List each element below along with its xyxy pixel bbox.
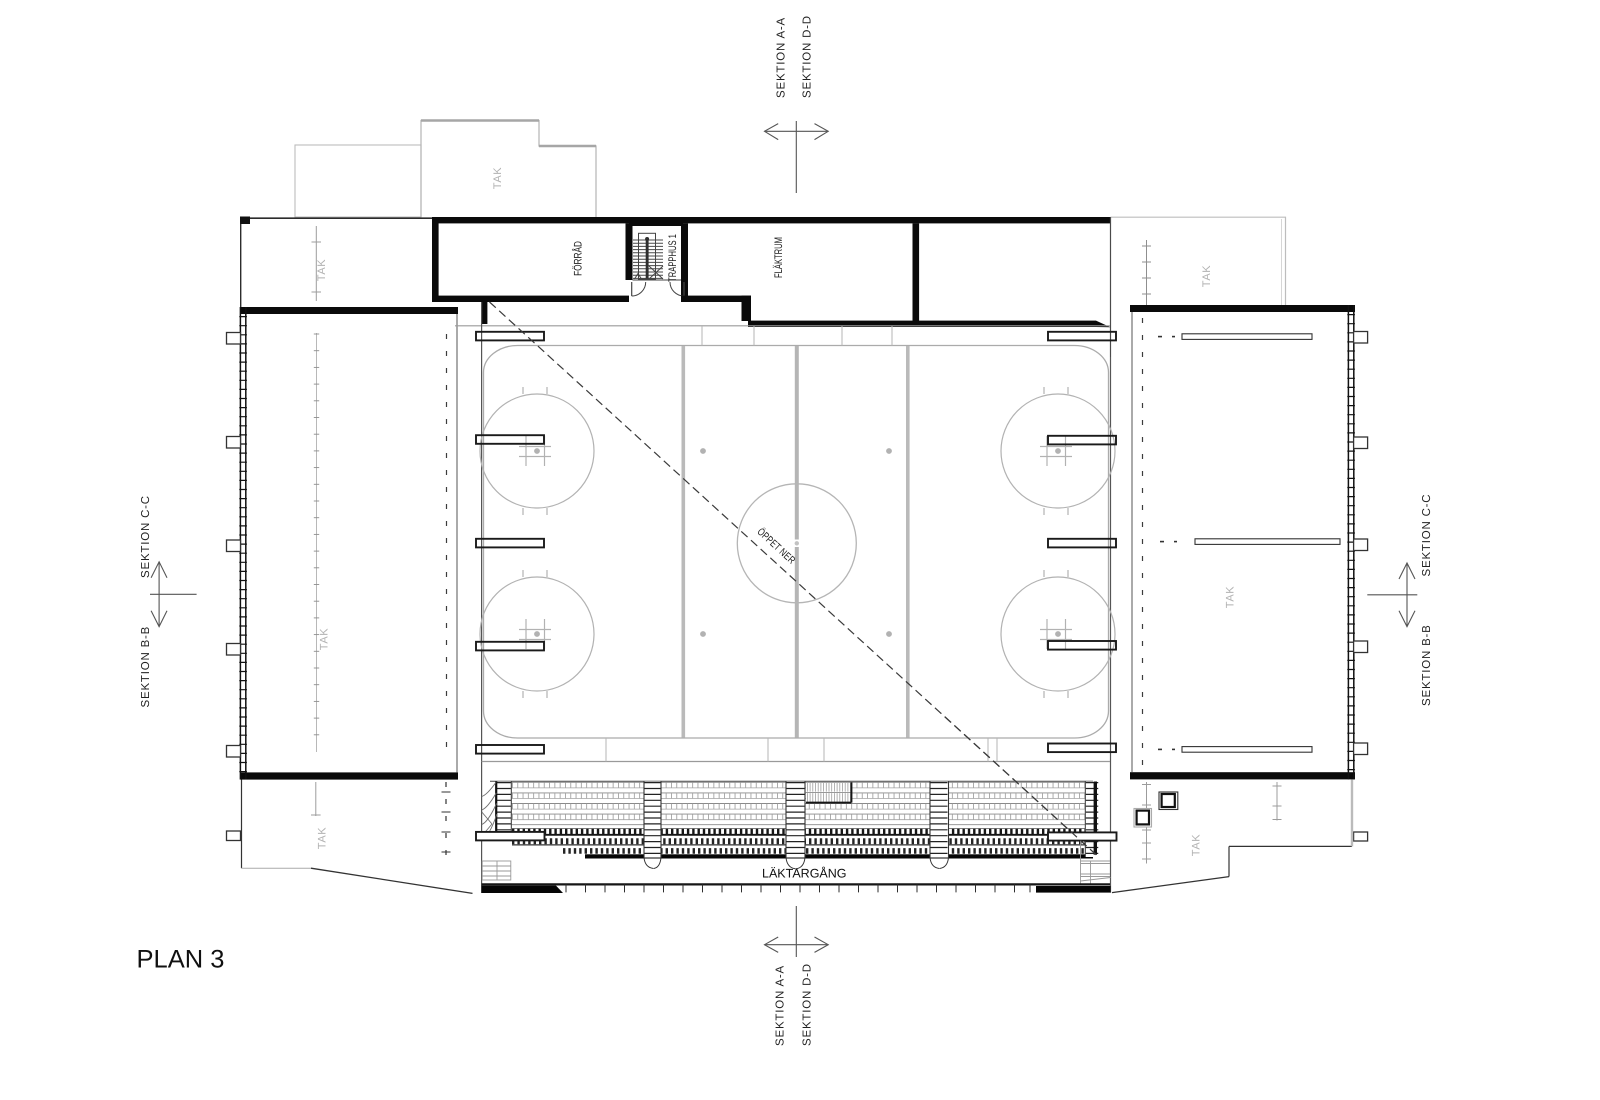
svg-text:TRAPPHUS 1: TRAPPHUS 1 (667, 234, 679, 282)
svg-text:SEKTION A-A: SEKTION A-A (775, 965, 787, 1046)
svg-text:PLAN 3: PLAN 3 (137, 946, 225, 974)
svg-text:SEKTION B-B: SEKTION B-B (1421, 624, 1433, 706)
svg-text:FLÄKTRUM: FLÄKTRUM (772, 237, 785, 278)
svg-text:SEKTION B-B: SEKTION B-B (140, 626, 152, 708)
svg-text:SEKTION C-C: SEKTION C-C (1421, 494, 1433, 577)
svg-text:SEKTION D-D: SEKTION D-D (801, 963, 813, 1046)
svg-text:LÄKTARGÅNG: LÄKTARGÅNG (762, 867, 847, 881)
svg-text:FÖRRÅD: FÖRRÅD (572, 241, 585, 276)
svg-text:TAK: TAK (317, 827, 329, 849)
svg-text:TAK: TAK (1201, 265, 1213, 287)
svg-text:TAK: TAK (1225, 586, 1237, 608)
svg-text:TAK: TAK (492, 167, 504, 189)
svg-text:TAK: TAK (316, 259, 328, 281)
svg-text:TAK: TAK (1191, 834, 1203, 856)
svg-text:SEKTION C-C: SEKTION C-C (140, 495, 152, 578)
svg-text:SEKTION A-A: SEKTION A-A (776, 17, 788, 98)
svg-text:TAK: TAK (319, 628, 331, 650)
svg-text:SEKTION D-D: SEKTION D-D (801, 15, 813, 98)
